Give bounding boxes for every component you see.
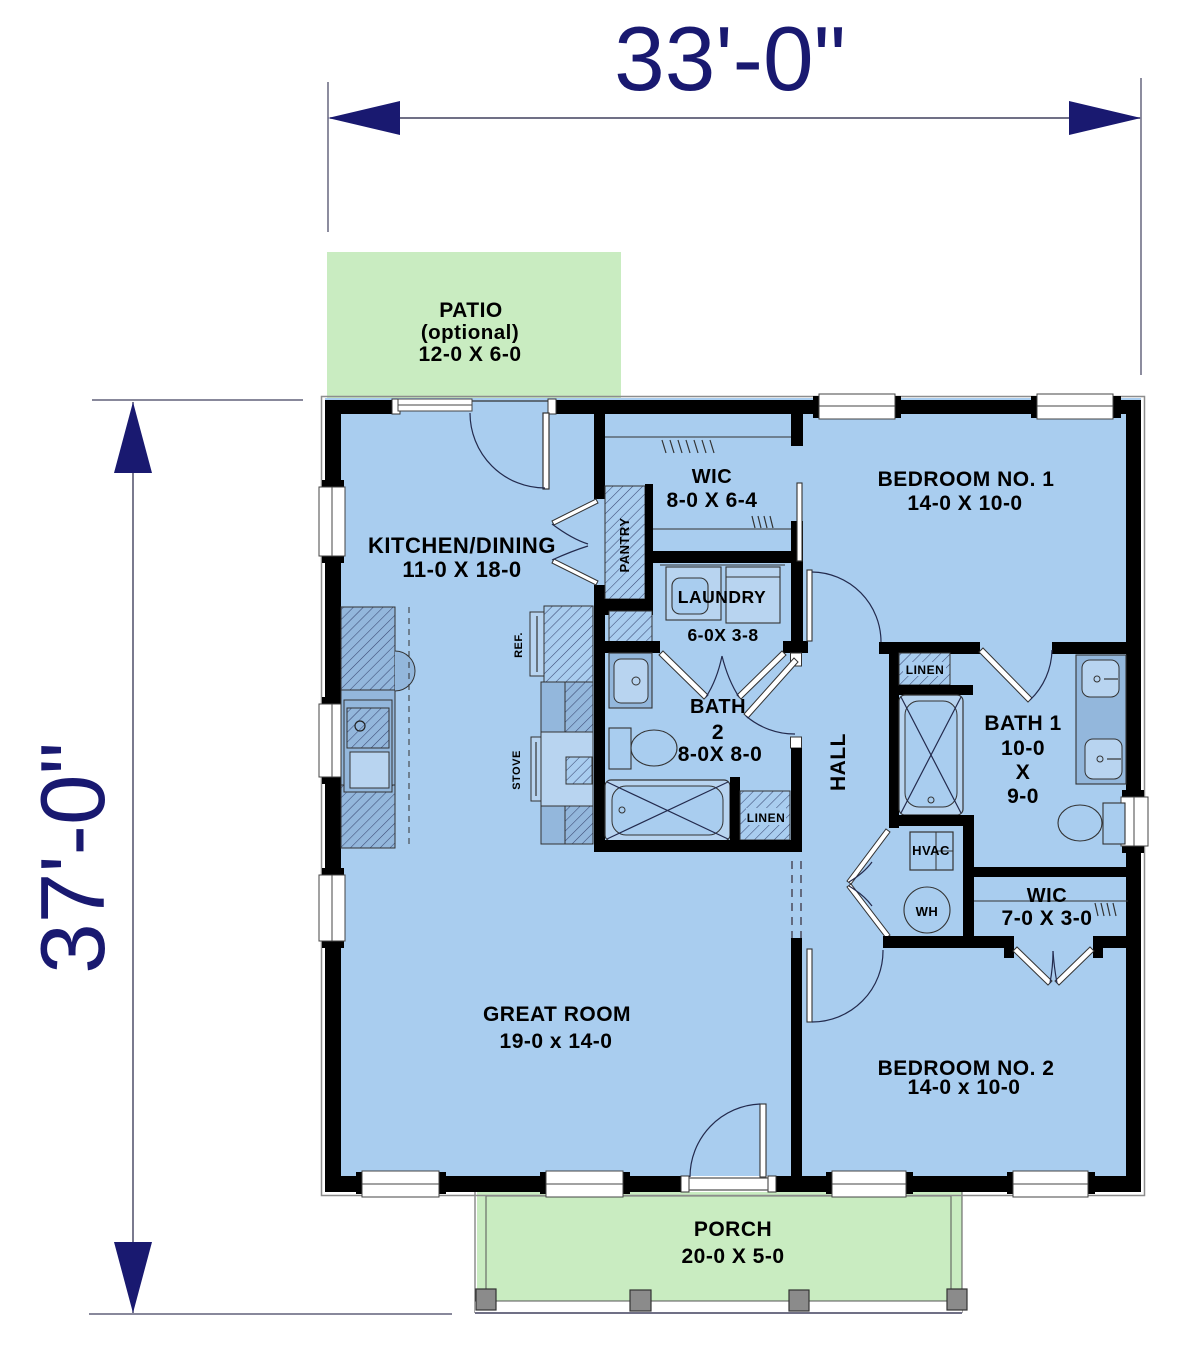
svg-text:11-0 X 18-0: 11-0 X 18-0 (402, 557, 521, 582)
svg-text:WIC: WIC (1027, 885, 1067, 907)
svg-text:KITCHEN/DINING: KITCHEN/DINING (368, 533, 556, 558)
svg-text:37'-0": 37'-0" (23, 742, 124, 974)
svg-text:8-0 X 6-4: 8-0 X 6-4 (667, 489, 758, 512)
svg-text:PORCH: PORCH (694, 1218, 772, 1241)
svg-text:12-0 X 6-0: 12-0 X 6-0 (418, 343, 521, 366)
svg-text:BATH 1: BATH 1 (984, 712, 1061, 735)
svg-text:WIC: WIC (692, 466, 732, 488)
svg-text:BATH: BATH (690, 696, 746, 718)
svg-text:STOVE: STOVE (511, 750, 523, 790)
svg-text:LAUNDRY: LAUNDRY (678, 587, 766, 607)
svg-text:WH: WH (916, 904, 939, 919)
svg-text:(optional): (optional) (421, 321, 519, 344)
svg-text:PATIO: PATIO (439, 299, 503, 322)
svg-text:14-0 X 10-0: 14-0 X 10-0 (907, 492, 1022, 515)
svg-text:PANTRY: PANTRY (617, 518, 632, 573)
svg-text:BEDROOM NO. 1: BEDROOM NO. 1 (878, 468, 1055, 491)
svg-text:REF.: REF. (513, 632, 525, 658)
svg-text:7-0 X 3-0: 7-0 X 3-0 (1002, 907, 1093, 930)
svg-text:LINEN: LINEN (906, 663, 945, 677)
svg-text:20-0 X 5-0: 20-0 X 5-0 (681, 1245, 784, 1268)
svg-text:14-0 x 10-0: 14-0 x 10-0 (908, 1076, 1021, 1099)
svg-text:X: X (1016, 761, 1031, 784)
svg-text:GREAT ROOM: GREAT ROOM (483, 1003, 631, 1026)
svg-text:8-0X 8-0: 8-0X 8-0 (678, 743, 763, 766)
svg-text:33'-0": 33'-0" (614, 9, 846, 110)
svg-text:19-0 x 14-0: 19-0 x 14-0 (500, 1030, 613, 1053)
svg-text:10-0: 10-0 (1001, 737, 1045, 760)
svg-text:6-0X 3-8: 6-0X 3-8 (687, 625, 758, 645)
svg-text:HVAC: HVAC (912, 843, 950, 858)
svg-text:HALL: HALL (827, 733, 850, 791)
svg-text:LINEN: LINEN (747, 811, 786, 825)
svg-text:2: 2 (712, 721, 724, 744)
svg-text:9-0: 9-0 (1007, 785, 1039, 808)
